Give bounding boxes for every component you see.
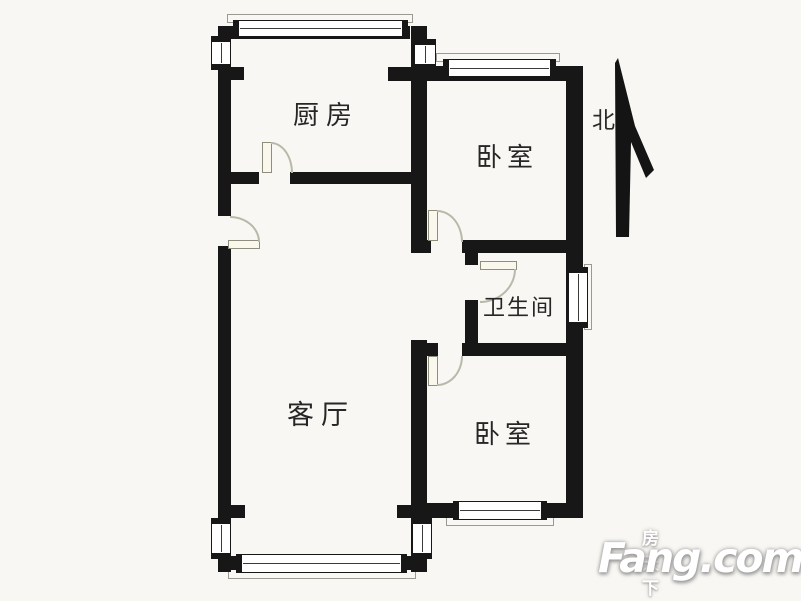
wall-kitchen-bottom-left bbox=[231, 172, 259, 184]
north-arrow-icon bbox=[608, 52, 663, 244]
window-kitchen-right bbox=[414, 39, 436, 70]
room-label-bedroom-north: 卧室 bbox=[476, 137, 538, 174]
pier-living-room-left bbox=[231, 505, 245, 518]
pier-kitchen-left bbox=[231, 67, 244, 80]
door-arc-entry bbox=[230, 216, 260, 242]
wall-bathroom-bottom-right bbox=[462, 343, 566, 356]
wall-kitchen-bottom-right bbox=[290, 172, 411, 184]
door-arc-bedroom-south bbox=[437, 356, 463, 386]
room-label-bathroom: 卫生间 bbox=[483, 290, 555, 322]
watermark-brand-en: Fang.com bbox=[598, 534, 801, 582]
pier-kitchen-right bbox=[388, 67, 411, 81]
wall-bathroom-left-top bbox=[465, 253, 478, 265]
door-arc-kitchen bbox=[271, 142, 293, 173]
door-arc-bedroom-north bbox=[437, 210, 463, 242]
wall-bedroom-north-bottom bbox=[462, 240, 566, 253]
window-central-lower bbox=[412, 518, 432, 559]
window-bathroom bbox=[568, 267, 588, 328]
room-label-kitchen: 厨房 bbox=[293, 95, 359, 132]
room-label-bedroom-south: 卧室 bbox=[474, 414, 536, 451]
room-label-living-room: 客厅 bbox=[287, 393, 355, 432]
window-living-room bbox=[236, 554, 407, 573]
window-left-lower bbox=[211, 518, 231, 559]
wall-bathroom-bottom-left bbox=[411, 343, 438, 356]
window-kitchen-left bbox=[211, 36, 231, 70]
wall-bedroom-north-bottom-stub bbox=[411, 240, 431, 253]
window-bedroom-south bbox=[453, 501, 547, 520]
pier-living-room-right bbox=[397, 505, 411, 518]
window-bedroom-north bbox=[443, 59, 556, 77]
floorplan-canvas: 厨房 卧室 卫生间 客厅 卧室 北 房天下 Fang.com bbox=[0, 0, 801, 601]
window-kitchen-top bbox=[233, 20, 408, 37]
wall-bathroom-left-bottom bbox=[465, 300, 478, 343]
